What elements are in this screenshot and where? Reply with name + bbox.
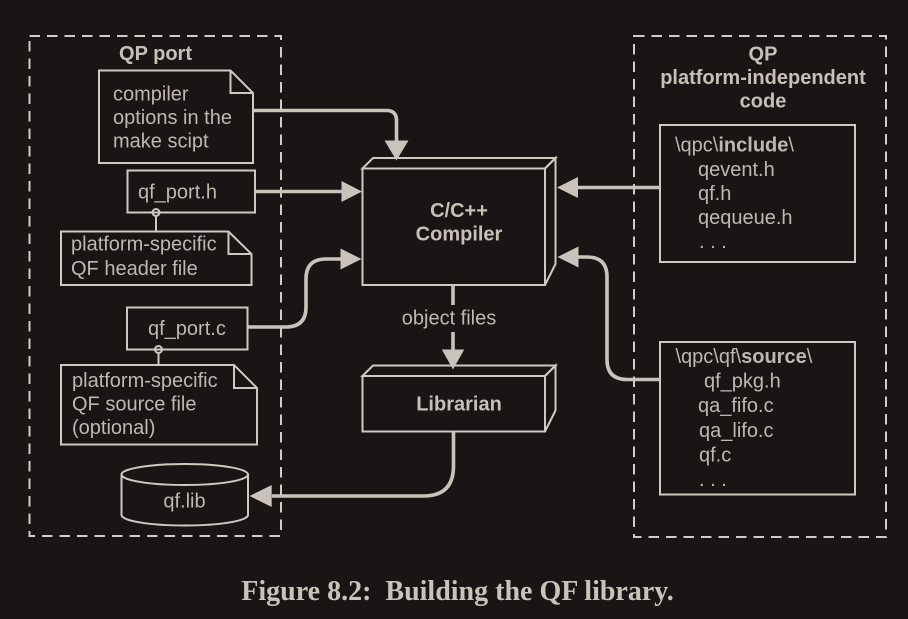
svg-text:QP port: QP port xyxy=(119,43,192,65)
svg-text:platform-specific: platform-specific xyxy=(71,234,217,256)
svg-text:qa_fifo.c: qa_fifo.c xyxy=(698,395,774,417)
svg-text:qf_pkg.h: qf_pkg.h xyxy=(704,371,781,393)
svg-text:object files: object files xyxy=(402,308,497,330)
svg-text:platform-specific: platform-specific xyxy=(72,370,218,392)
svg-text:QP: QP xyxy=(749,44,778,66)
svg-text:compiler: compiler xyxy=(113,84,189,106)
svg-text:\qpc\include\: \qpc\include\ xyxy=(675,135,794,157)
svg-text:make scipt: make scipt xyxy=(113,131,209,153)
svg-text:\qpc\qf\source\: \qpc\qf\source\ xyxy=(676,346,813,368)
svg-text:qf.h: qf.h xyxy=(698,183,731,205)
svg-text:options in the: options in the xyxy=(113,107,232,129)
svg-text:platform-independent: platform-independent xyxy=(660,67,866,89)
svg-text:qf_port.h: qf_port.h xyxy=(138,182,217,204)
svg-text:QF header file: QF header file xyxy=(71,258,198,280)
svg-text:qa_lifo.c: qa_lifo.c xyxy=(699,420,774,442)
svg-text:. . .: . . . xyxy=(699,469,727,491)
svg-text:. . .: . . . xyxy=(699,231,727,253)
svg-text:C/C++: C/C++ xyxy=(430,200,488,222)
svg-text:(optional): (optional) xyxy=(72,417,155,439)
svg-text:code: code xyxy=(740,91,787,113)
svg-text:QF source file: QF source file xyxy=(72,394,196,416)
svg-text:qf.lib: qf.lib xyxy=(163,491,205,513)
svg-text:qevent.h: qevent.h xyxy=(698,159,775,181)
svg-text:Figure 8.2: Building the QF l: Figure 8.2: Building the QF library. xyxy=(241,576,673,607)
svg-text:Compiler: Compiler xyxy=(416,224,503,246)
svg-text:qequeue.h: qequeue.h xyxy=(698,207,793,229)
svg-text:qf_port.c: qf_port.c xyxy=(148,318,226,340)
svg-text:qf.c: qf.c xyxy=(699,445,731,467)
svg-text:Librarian: Librarian xyxy=(416,394,502,416)
